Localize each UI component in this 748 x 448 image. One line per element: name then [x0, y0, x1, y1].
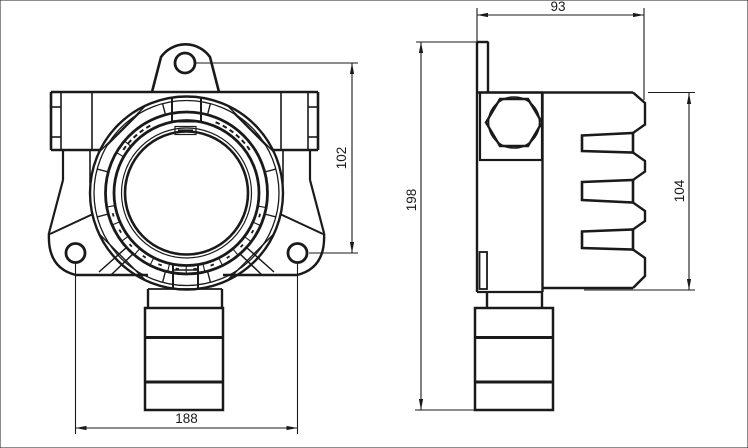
dim-label-93: 93 [550, 0, 565, 14]
right-mounting-hole [288, 244, 307, 263]
drawing-page: 102 188 93 198 104 [0, 0, 748, 448]
dim-label-102: 102 [334, 147, 349, 170]
front-sensor-stack [145, 289, 223, 410]
side-finned-body [477, 93, 645, 293]
front-bezel-rings [90, 97, 283, 290]
side-hex-gland [480, 93, 542, 161]
front-top-lug [152, 44, 219, 92]
side-view [475, 42, 645, 410]
dim-label-104: 104 [672, 179, 687, 202]
display-window [125, 132, 248, 255]
fin-slot-1 [582, 133, 633, 153]
dim-label-188: 188 [175, 411, 198, 426]
left-mounting-hole [66, 244, 85, 263]
front-view [49, 44, 324, 410]
side-sensor-stack [475, 292, 553, 410]
fin-slot-2 [582, 180, 633, 203]
side-mounting-plate [477, 42, 488, 292]
top-mounting-hole [175, 53, 195, 73]
side-lower-lug [480, 252, 488, 289]
dim-label-198: 198 [404, 189, 419, 212]
drawing-canvas: 102 188 93 198 104 [0, 0, 748, 448]
bezel-marking-ticks [113, 122, 260, 269]
dimension-93: 93 [477, 0, 644, 100]
fin-slot-3 [582, 230, 633, 250]
